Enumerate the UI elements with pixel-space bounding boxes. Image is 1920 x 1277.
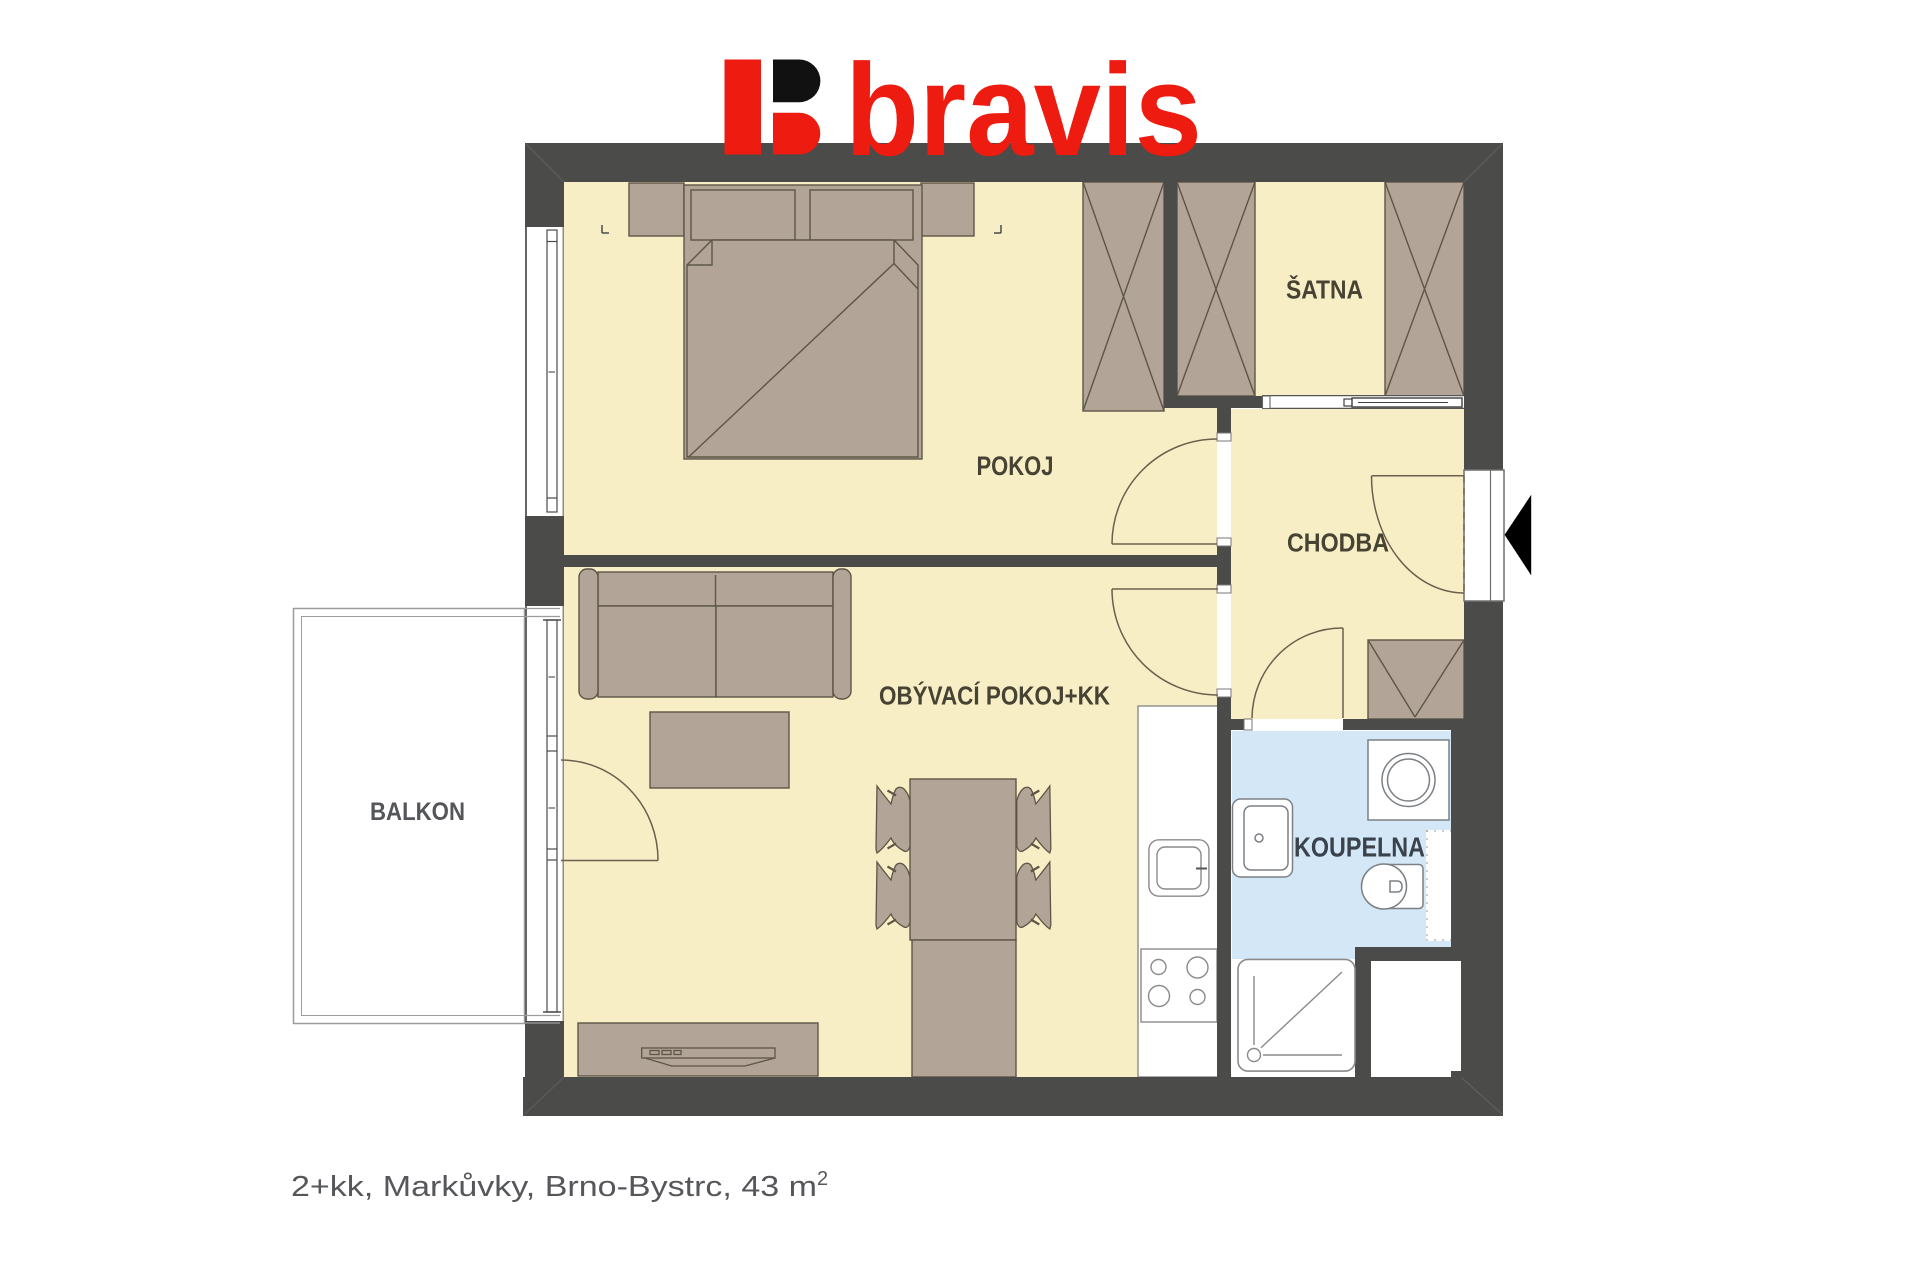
svg-text:POKOJ: POKOJ <box>977 451 1054 481</box>
svg-text:bravis: bravis <box>845 36 1202 183</box>
svg-text:2+kk, Markůvky, Brno-Bystrc, 4: 2+kk, Markůvky, Brno-Bystrc, 43 m2 <box>291 1168 828 1203</box>
svg-text:CHODBA: CHODBA <box>1287 528 1389 558</box>
svg-text:ŠATNA: ŠATNA <box>1286 275 1363 305</box>
svg-text:KOUPELNA: KOUPELNA <box>1294 832 1425 863</box>
svg-text:OBÝVACÍ POKOJ+KK: OBÝVACÍ POKOJ+KK <box>879 681 1110 711</box>
svg-text:BALKON: BALKON <box>370 798 465 826</box>
